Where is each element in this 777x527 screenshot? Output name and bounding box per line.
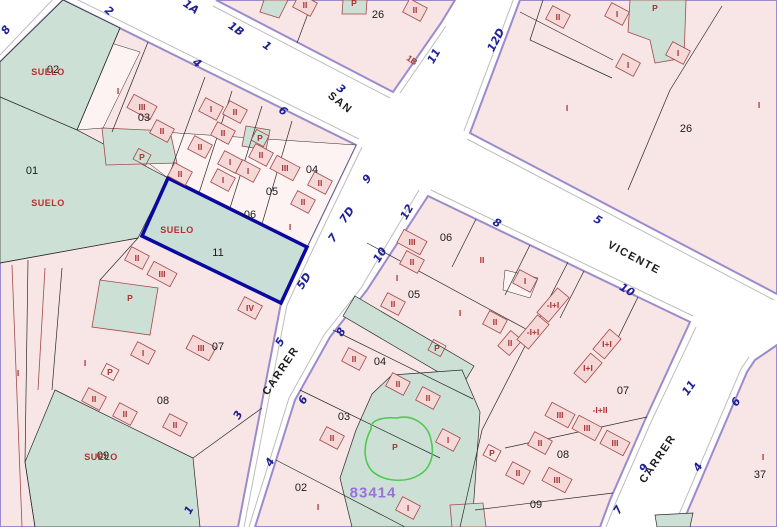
street-number-label: 9 bbox=[360, 172, 375, 186]
cadastral-map-canvas[interactable]: cadastral parcel map bbox=[0, 0, 777, 527]
street-number-label: 7 bbox=[325, 231, 340, 245]
green-corner bbox=[655, 513, 693, 527]
street-number-label: 5D bbox=[294, 270, 314, 291]
green-building bbox=[450, 503, 486, 527]
street-number-label: 8 bbox=[0, 23, 14, 37]
street-name-label: VICENTE bbox=[605, 239, 662, 277]
block-bottom-right[interactable] bbox=[680, 345, 777, 527]
street-name-label: CARRER bbox=[637, 432, 678, 485]
street-number-label: 5 bbox=[591, 212, 604, 227]
street-name-label: SAN bbox=[325, 90, 354, 117]
green-parcel-p[interactable] bbox=[92, 280, 158, 335]
street-number-label: 3 bbox=[334, 82, 348, 97]
street-number-label: 7D bbox=[337, 204, 357, 225]
street-number-label: 9 bbox=[636, 461, 651, 475]
street-number-label: 1A bbox=[181, 0, 202, 17]
street-number-label: 11 bbox=[425, 46, 444, 66]
green-building bbox=[342, 0, 367, 14]
street-number-label: 1 bbox=[260, 38, 274, 53]
street-number-label: 11 bbox=[679, 378, 698, 398]
street-number-label: 2 bbox=[102, 4, 116, 19]
